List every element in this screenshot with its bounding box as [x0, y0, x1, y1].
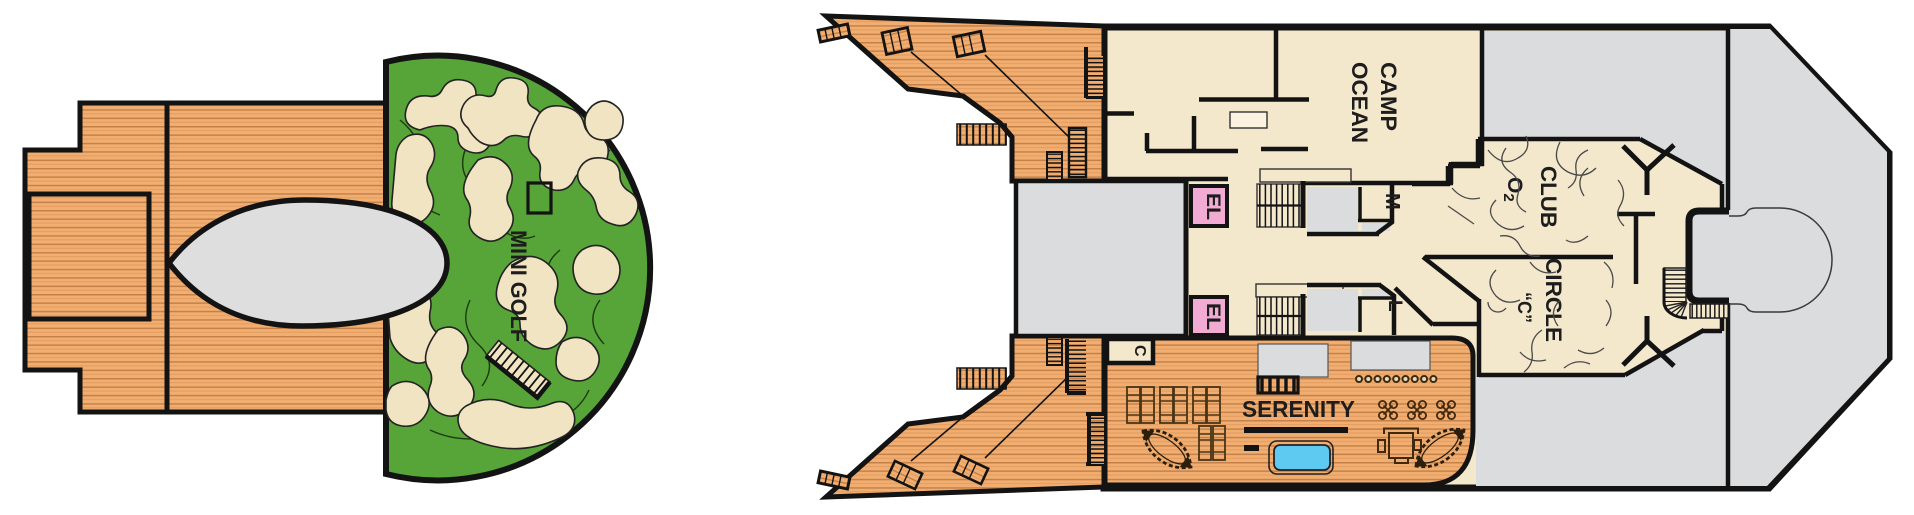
svg-text:SERENITY: SERENITY [1242, 396, 1355, 422]
svg-text:MINI GOLF: MINI GOLF [506, 230, 531, 342]
svg-text:EL: EL [1202, 303, 1223, 330]
svg-text:“C”: “C” [1513, 292, 1534, 323]
svg-text:EL: EL [1202, 193, 1223, 220]
svg-text:L: L [1384, 300, 1405, 312]
svg-text:C: C [1131, 345, 1148, 357]
svg-text:M: M [1381, 193, 1403, 210]
svg-text:CIRCLE: CIRCLE [1541, 258, 1566, 342]
svg-text:CLUB: CLUB [1536, 166, 1561, 228]
svg-text:OCEAN: OCEAN [1347, 62, 1372, 143]
svg-text:CAMP: CAMP [1376, 62, 1401, 131]
